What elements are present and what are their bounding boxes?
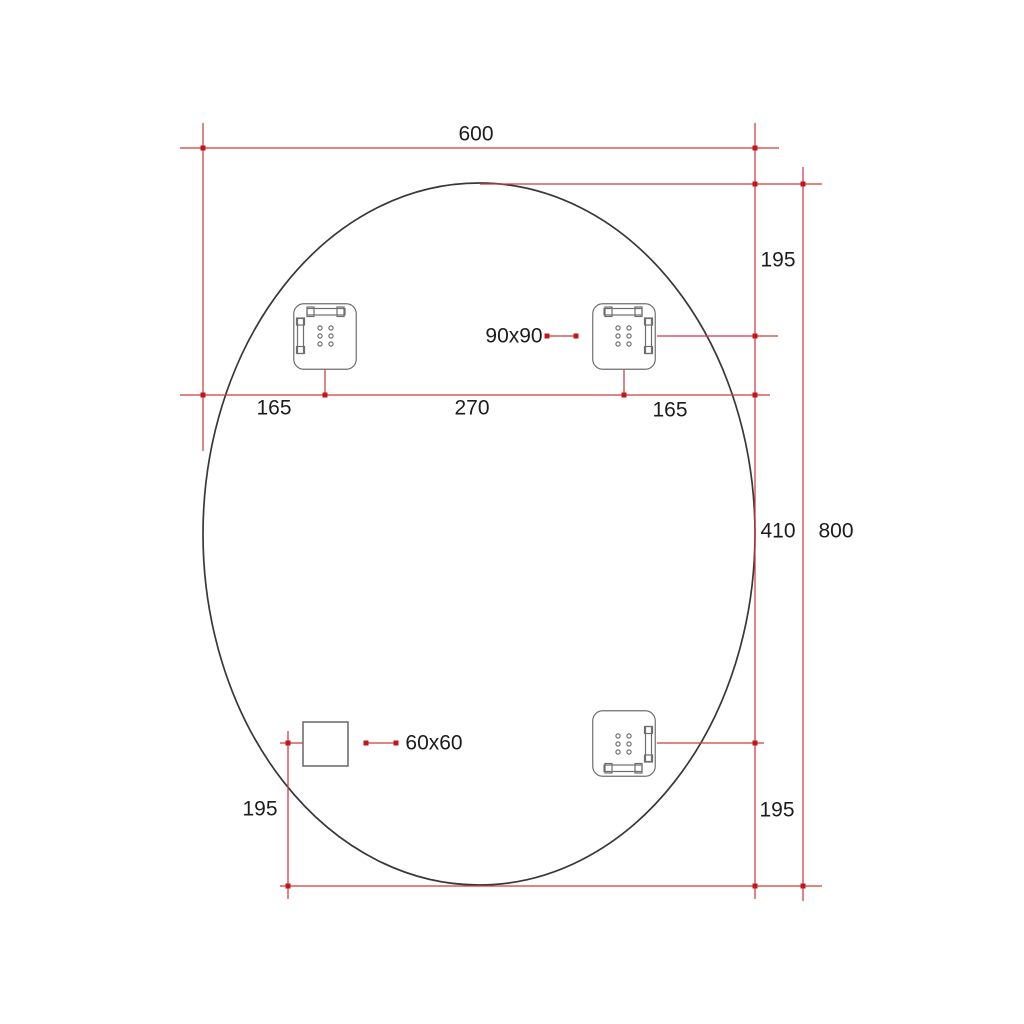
bracket-bottom-right: [593, 711, 656, 777]
dim-overall-width: 600: [458, 124, 493, 145]
dim-bracket-to-right-edge: 165: [652, 400, 687, 421]
bracket-top-left: [294, 304, 357, 370]
square-cutout-bottom-left: [303, 722, 348, 766]
dim-top-right-offset: 195: [760, 250, 795, 271]
dim-overall-height: 800: [818, 521, 853, 542]
dim-bottom-right-offset: 195: [759, 800, 794, 821]
dim-left-edge-to-bracket: 165: [256, 398, 291, 419]
technical-drawing-canvas: 600 195 90x90 165 270 165 410 800 60x60 …: [0, 0, 1024, 1024]
drawing-graphics: [0, 0, 1024, 1024]
bracket-top-right: [593, 304, 656, 370]
dimension-lines: [180, 123, 822, 901]
dim-bottom-left-offset: 195: [242, 799, 277, 820]
dim-between-brackets: 270: [454, 398, 489, 419]
dim-square-size: 60x60: [405, 733, 462, 754]
oval-mirror-outline: [203, 183, 755, 885]
dimension-endpoint-dots: [201, 146, 806, 889]
dim-bracket-size: 90x90: [485, 326, 542, 347]
dim-center-to-bottom-right: 410: [760, 521, 795, 542]
